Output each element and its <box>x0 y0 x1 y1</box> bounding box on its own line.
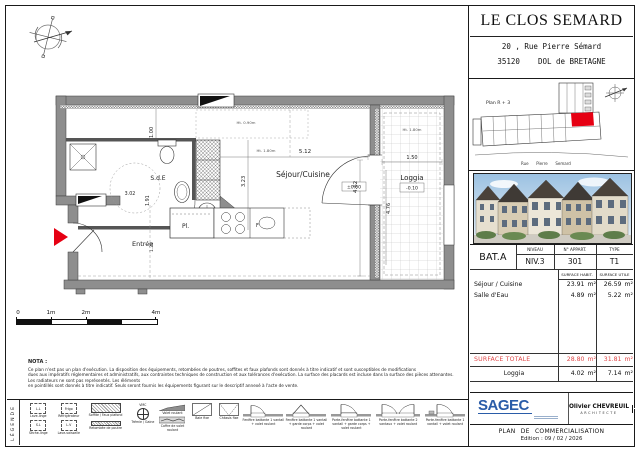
room-label-sejour: Séjour/Cuisine <box>276 170 330 179</box>
legend-box-frigo: Frigo <box>61 403 77 414</box>
nota-title: NOTA : <box>28 360 460 366</box>
scale-0: 0 <box>16 310 20 316</box>
door-window-volet-icon <box>425 403 465 418</box>
loggia-habit: 4.02m² <box>558 366 599 381</box>
scale-2m: 2m <box>81 310 90 316</box>
dim-302: 3.02 <box>125 191 136 197</box>
door-window-swing-icon <box>331 403 371 418</box>
legend-box-sl: S.L <box>30 420 46 431</box>
section-rule <box>468 78 635 79</box>
legend-window-1: Fenêtre battante 1 vantail + volet roula… <box>242 400 284 445</box>
legend-box-lv: L.V <box>61 420 77 431</box>
legend-strip: LÉGENDE L.LLave-linge FrigoRéfrigérateur… <box>7 399 468 445</box>
scale-bar: 0 1m 2m 4m <box>16 310 158 330</box>
loggia-label: Loggia <box>470 366 558 381</box>
vmc-icon <box>137 408 149 420</box>
plan-sheet: Séjour/Cuisine S.d.E Entrée Pl. Loggia 5… <box>0 0 640 452</box>
legend-door-window-3: Porte-fenêtre battante 1 vantail + volet… <box>422 400 468 445</box>
dim-512: 5.12 <box>299 149 311 155</box>
closet-and-counter <box>170 208 310 238</box>
dim-150: 1.50 <box>406 155 417 161</box>
row-label: Séjour / Cuisine <box>470 279 562 290</box>
legend-chassis-fixe: Châssis fixe <box>216 400 243 445</box>
row-label: Salle d'Eau <box>470 290 562 301</box>
bat-label: BAT.A <box>470 245 516 269</box>
legend-volet: Volet roulant Coffre de volet roulant <box>156 400 189 445</box>
dim-191: 1.91 <box>145 195 151 206</box>
address-line1: 20 , Rue Pierre Sémard <box>470 42 633 51</box>
nota-block: NOTA : Ce plan n'est pas un plan d'exécu… <box>28 360 460 389</box>
row-utile: 5.22m² <box>596 290 636 301</box>
legend-window-2: Fenêtre battante 1 vantail + garde corps… <box>284 400 328 445</box>
building-photo <box>473 173 632 244</box>
volet-icon <box>159 403 185 411</box>
title-rule <box>470 36 633 37</box>
edition-date: Edition : 09 / 02 / 2026 <box>470 436 633 442</box>
section-rule <box>468 170 635 171</box>
dim-323: 3.23 <box>241 176 247 187</box>
total-utile: 31.81m² <box>596 353 636 366</box>
row-habit: 4.89m² <box>558 290 599 301</box>
legend-box-ll: L.L <box>30 403 46 414</box>
siteplan-compass-icon <box>605 84 627 102</box>
height-180-b: Ht. 1.80m <box>403 127 422 132</box>
niveau-value: NIV.3 <box>516 254 554 269</box>
level-zero: ±0.00 <box>347 185 361 191</box>
scale-1m: 1m <box>46 310 55 316</box>
double-door-swing-icon <box>376 403 420 418</box>
soffite-swatch <box>91 403 121 413</box>
sagec-tagline-line <box>534 418 558 419</box>
dim-100: 1.00 <box>149 127 155 138</box>
legend-door-window-2: Porte-fenêtre battante 2 vantaux + volet… <box>374 400 422 445</box>
entrance-arrow <box>54 228 68 246</box>
legend-door-window-1: Porte-fenêtre battante 1 vantail + garde… <box>328 400 374 445</box>
col-type: TYPE <box>596 245 633 254</box>
legend-title: LÉGENDE <box>7 400 20 445</box>
window-swing-icon <box>243 403 283 418</box>
height-090: Ht. 0.90m <box>237 120 256 125</box>
level-minus: -0.10 <box>406 186 418 192</box>
room-label-sde: S.d.E <box>150 175 165 182</box>
chassis-fixe-icon <box>219 403 239 416</box>
dim-122: 1.22 <box>149 242 155 252</box>
project-title: LE CLOS SEMARD <box>470 12 633 30</box>
col-surface-utile: SURFACE UTILE <box>596 269 633 279</box>
panel-divider <box>468 5 469 447</box>
siteplan-label: Plan R + 3 <box>486 101 510 106</box>
north-compass-icon <box>20 10 82 68</box>
doc-title-box: PLAN DE COMMERCIALISATION Edition : 09 /… <box>470 424 633 447</box>
legend-appliances: L.LLave-linge FrigoRéfrigérateur S.LSèch… <box>20 400 81 445</box>
nota-line: dues aux impératifs réglementaires et ad… <box>28 372 460 383</box>
height-180-a: Ht. 1.80m <box>257 148 276 153</box>
unit-table: BAT.A NIVEAU N° APPART. TYPE NIV.3 301 T… <box>470 244 633 393</box>
stove-label: F <box>256 223 259 229</box>
loggia-utile: 7.14m² <box>596 366 636 381</box>
architect-mark-icon <box>632 405 633 413</box>
col-appart: N° APPART. <box>554 245 596 254</box>
architect-logo: Olivier CHEVREUIL ARCHITECTE <box>569 393 633 425</box>
legend-baie-fixe: Baie fixe <box>189 400 216 445</box>
doc-title: PLAN DE COMMERCIALISATION <box>470 428 633 435</box>
baie-fixe-icon <box>192 403 212 416</box>
address-line2: 35120 DOL de BRETAGNE <box>470 57 633 66</box>
street-line <box>475 152 628 157</box>
street-label: Rue Pierre Semard <box>521 161 571 166</box>
appart-value: 301 <box>554 254 596 269</box>
unit-301-highlight <box>571 112 594 126</box>
room-label-pl: Pl. <box>182 223 189 230</box>
col-surface-habit: SURFACE HABIT. <box>558 269 596 279</box>
loggia-floor <box>380 109 444 281</box>
kitchen <box>196 110 308 221</box>
row-utile: 26.59m² <box>596 279 636 290</box>
scale-4m: 4m <box>151 310 160 316</box>
legend-soffite: Soffite / Faux plafond Retombée de poutr… <box>82 400 130 445</box>
window-pivot-icon <box>286 403 326 418</box>
total-label: SURFACE TOTALE <box>470 353 562 366</box>
coffre-icon <box>159 416 185 424</box>
sagec-logo: SAGEC <box>470 393 569 425</box>
room-label-loggia: Loggia <box>400 174 423 182</box>
legend-vmc: VMC Trémie / Gaine <box>129 400 156 445</box>
scale-bar-segments <box>16 319 158 325</box>
floor-plan: Séjour/Cuisine S.d.E Entrée Pl. Loggia 5… <box>50 90 465 305</box>
col-niveau: NIVEAU <box>516 245 554 254</box>
dim-476: 4.76 <box>386 203 392 214</box>
type-value: T1 <box>596 254 633 269</box>
site-plan: Rue Pierre Semard <box>471 81 632 170</box>
sagec-tagline-line <box>534 416 558 417</box>
sagec-rule <box>478 413 532 414</box>
total-habit: 28.80m² <box>558 353 599 366</box>
nota-line: en pointillés sont donnés à titre indica… <box>28 383 460 389</box>
footer-logos: SAGEC Olivier CHEVREUIL ARCHITECTE <box>470 392 633 425</box>
row-habit: 23.91m² <box>558 279 599 290</box>
